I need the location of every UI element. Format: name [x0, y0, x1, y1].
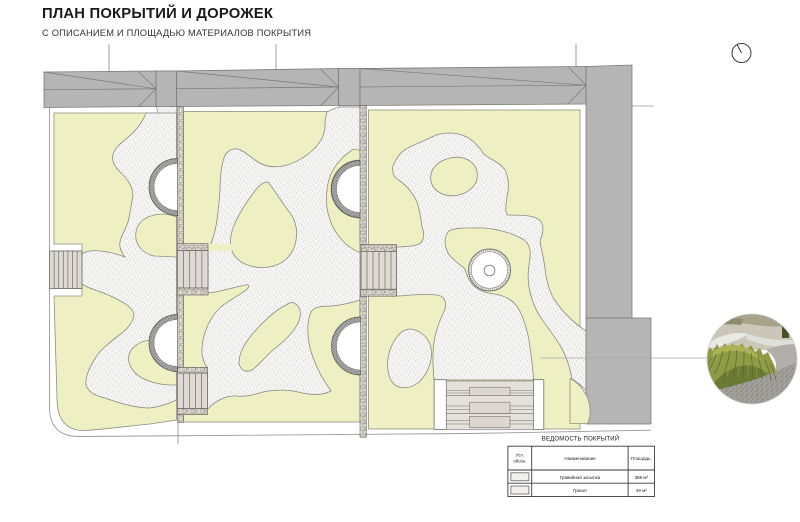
svg-text:Гравийная засыпка: Гравийная засыпка	[560, 474, 601, 480]
svg-text:Площадь,: Площадь,	[631, 456, 652, 461]
svg-text:385 м²: 385 м²	[635, 475, 649, 480]
svg-text:Усл.: Усл.	[516, 453, 524, 458]
svg-text:ВЕДОМОСТЬ ПОКРЫТИЙ: ВЕДОМОСТЬ ПОКРЫТИЙ	[542, 435, 619, 443]
svg-text:Гранит: Гранит	[573, 488, 587, 493]
svg-text:Наименование: Наименование	[564, 456, 596, 461]
svg-text:49 м²: 49 м²	[636, 488, 647, 493]
svg-text:обозн.: обозн.	[513, 459, 526, 464]
